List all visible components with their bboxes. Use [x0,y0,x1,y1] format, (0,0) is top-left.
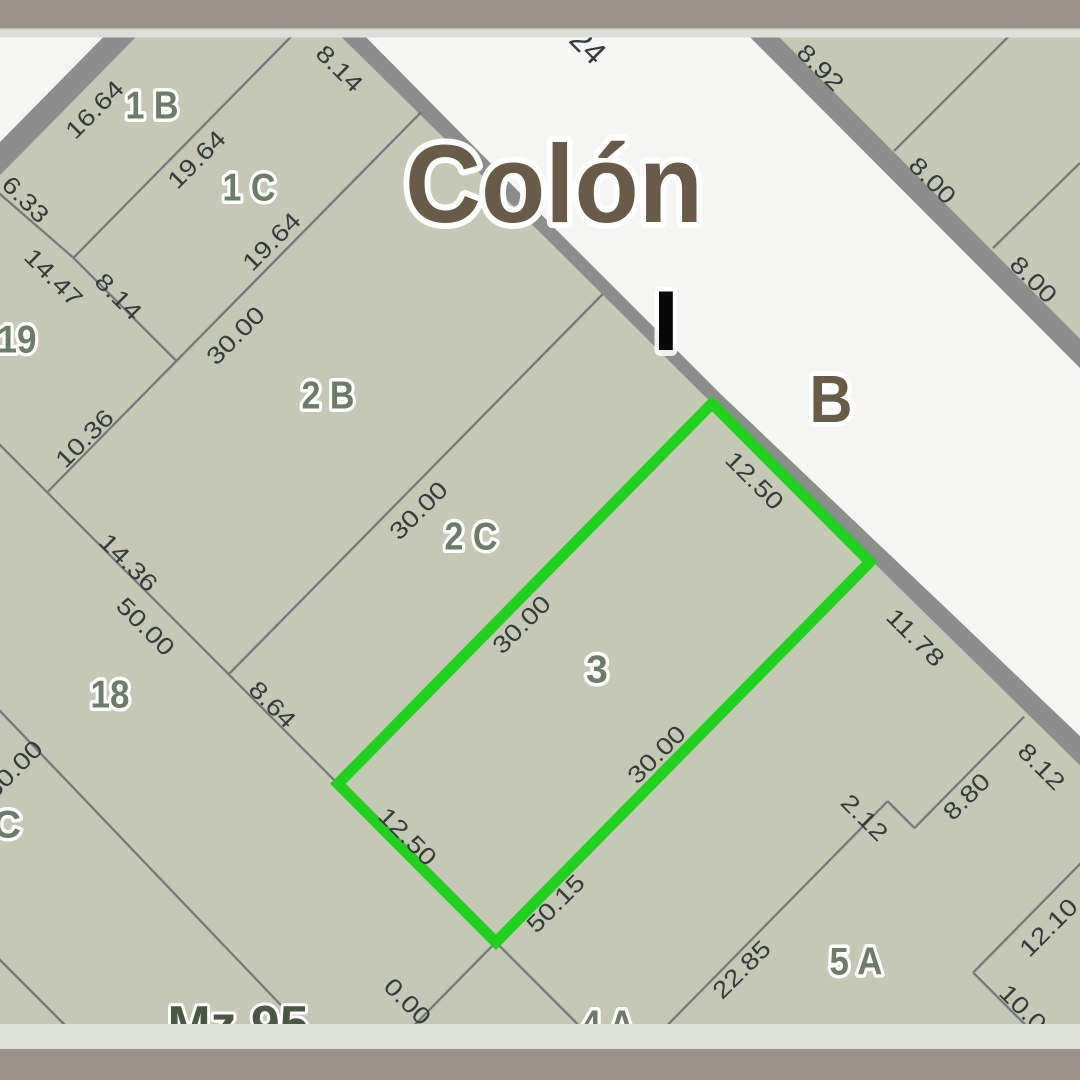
svg-text:1 B: 1 B [126,85,179,128]
svg-text:2 C: 2 C [445,516,498,559]
svg-text:2 B: 2 B [302,375,355,418]
svg-text:3: 3 [586,649,608,692]
svg-text:19: 19 [0,319,37,362]
svg-text:B: B [810,362,853,437]
svg-text:C: C [0,804,21,847]
svg-text:1 C: 1 C [223,167,276,210]
svg-text:Colón: Colón [405,123,703,246]
svg-text:5 A: 5 A [830,941,883,984]
svg-text:18: 18 [91,674,130,717]
